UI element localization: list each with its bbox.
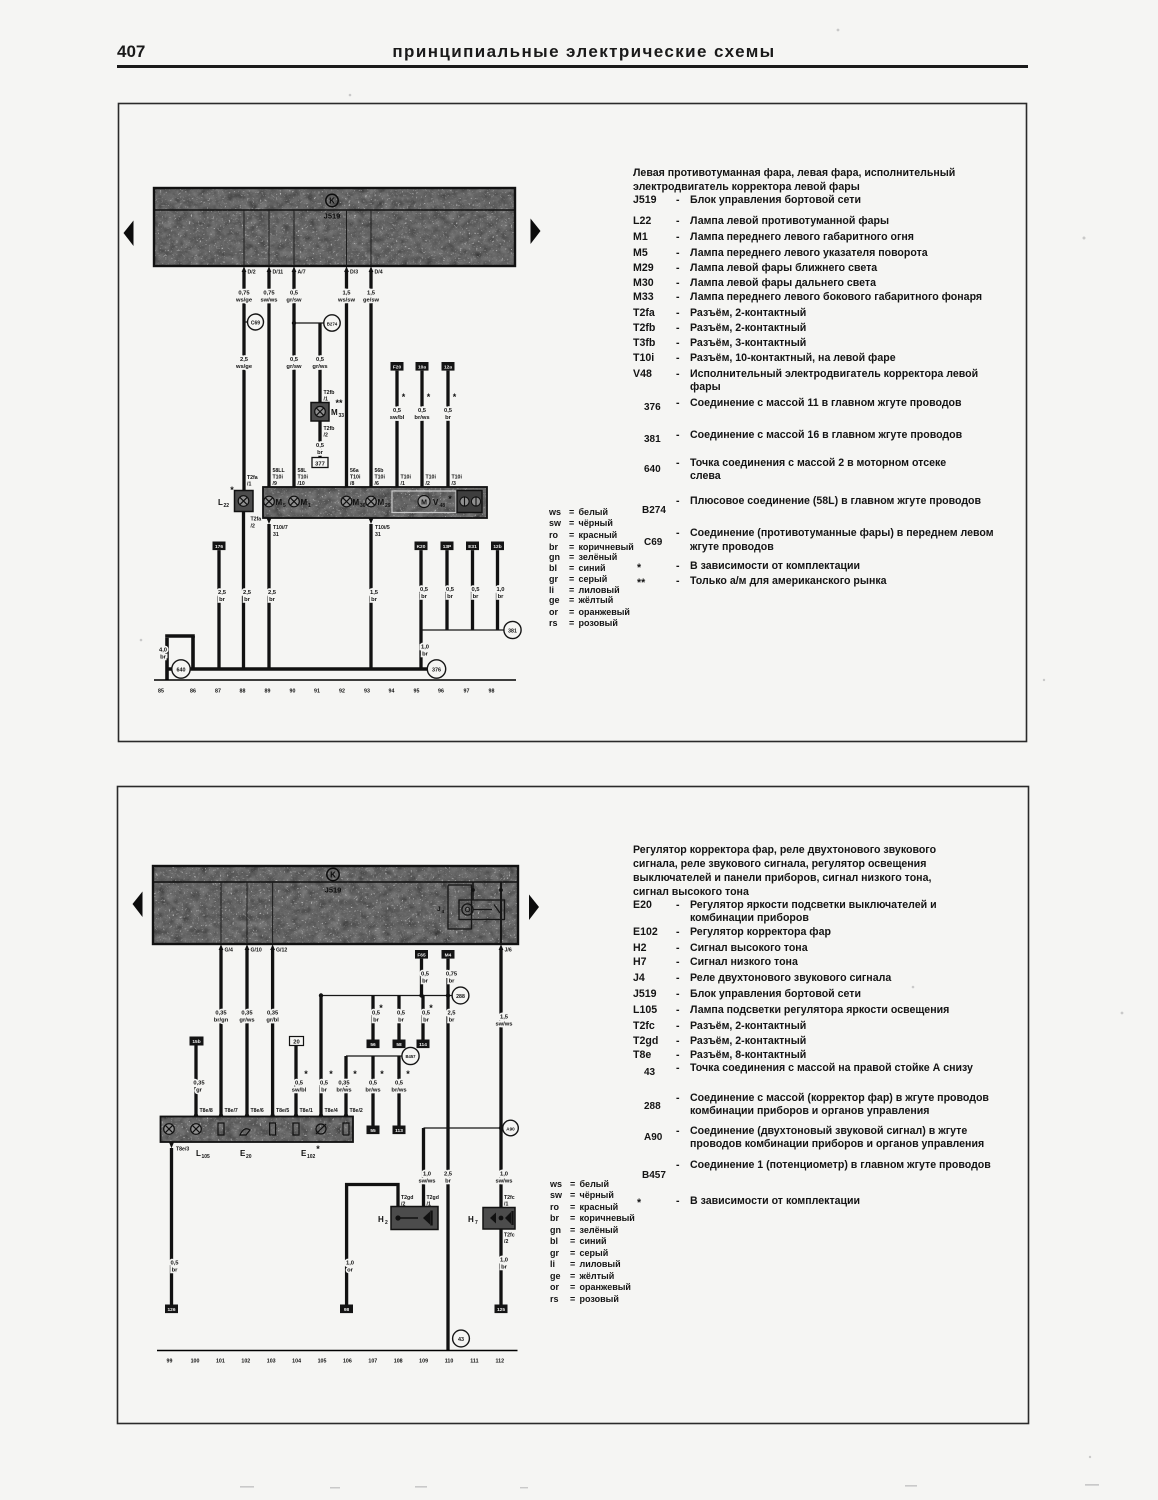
svg-text:T10i: T10i <box>452 475 463 481</box>
svg-text:/1: /1 <box>504 1202 508 1208</box>
svg-text:gr/bl: gr/bl <box>266 1018 279 1024</box>
svg-text:33: 33 <box>339 413 345 419</box>
svg-text:0,5: 0,5 <box>397 1011 406 1017</box>
svg-text:58LL: 58LL <box>273 468 286 474</box>
svg-text:C69: C69 <box>251 320 260 326</box>
svg-text:55: 55 <box>370 1128 376 1134</box>
svg-text:*: * <box>316 1144 320 1154</box>
svg-text:2,5: 2,5 <box>218 590 227 596</box>
svg-text:56: 56 <box>370 1042 376 1048</box>
svg-text:0,5: 0,5 <box>369 1081 378 1087</box>
svg-text:br: br <box>501 1265 508 1271</box>
svg-text:85: 85 <box>158 689 164 695</box>
svg-text:sw/ws: sw/ws <box>495 1179 512 1185</box>
svg-text:106: 106 <box>343 1359 352 1365</box>
svg-text:gr: gr <box>196 1088 203 1094</box>
svg-text:gr/ws: gr/ws <box>312 364 327 370</box>
svg-text:M: M <box>353 498 360 507</box>
svg-text:J: J <box>437 906 441 913</box>
svg-text:br: br <box>269 597 276 603</box>
svg-text:0,5: 0,5 <box>372 1011 381 1017</box>
svg-text:95: 95 <box>414 689 420 695</box>
svg-text:V: V <box>433 498 439 507</box>
svg-text:176: 176 <box>215 544 223 550</box>
svg-text:**: ** <box>335 398 343 408</box>
svg-text:377: 377 <box>315 462 325 468</box>
svg-text:M4: M4 <box>445 952 452 958</box>
svg-text:B457: B457 <box>405 1054 416 1059</box>
svg-text:M: M <box>378 498 385 507</box>
svg-text:56b: 56b <box>375 468 384 474</box>
svg-text:K: K <box>329 197 335 206</box>
svg-text:br/ws: br/ws <box>391 1088 406 1094</box>
svg-text:58: 58 <box>396 1042 402 1048</box>
svg-text:2,5: 2,5 <box>243 590 252 596</box>
svg-text:gr/ws: gr/ws <box>239 1018 254 1024</box>
svg-text:0,5: 0,5 <box>316 443 325 449</box>
svg-text:E31: E31 <box>468 544 477 550</box>
svg-text:103: 103 <box>267 1359 276 1365</box>
svg-text:br: br <box>373 1018 380 1024</box>
svg-text:381: 381 <box>508 628 517 634</box>
svg-text:107: 107 <box>368 1359 377 1365</box>
svg-text:102: 102 <box>307 1154 316 1160</box>
svg-text:0,5: 0,5 <box>170 1261 179 1267</box>
svg-text:T10i: T10i <box>426 475 437 481</box>
svg-text:*: * <box>329 1069 333 1079</box>
svg-text:*: * <box>353 1069 357 1079</box>
svg-text:J519: J519 <box>325 886 342 895</box>
svg-text:br: br <box>445 1179 452 1185</box>
svg-text:0,5: 0,5 <box>446 587 455 593</box>
svg-text:31: 31 <box>375 532 381 538</box>
svg-text:T10i: T10i <box>350 475 361 481</box>
svg-text:M: M <box>276 498 283 507</box>
svg-text:/1: /1 <box>324 397 328 403</box>
svg-text:*: * <box>453 392 457 402</box>
svg-text:99: 99 <box>167 1359 173 1365</box>
svg-text:ws/sw: ws/sw <box>337 298 356 304</box>
svg-text:ws/ge: ws/ge <box>235 298 253 304</box>
svg-text:br/ws: br/ws <box>336 1088 351 1094</box>
svg-text:*: * <box>380 1069 384 1079</box>
svg-text:1: 1 <box>308 503 311 509</box>
svg-text:1,0: 1,0 <box>500 1172 508 1178</box>
svg-text:98: 98 <box>344 1307 350 1313</box>
svg-text:20: 20 <box>293 1040 299 1046</box>
svg-text:ws/ge: ws/ge <box>235 364 253 370</box>
svg-text:48: 48 <box>440 503 446 509</box>
svg-text:T2gd: T2gd <box>401 1195 413 1201</box>
svg-text:br: br <box>422 652 429 658</box>
svg-text:T8e/6: T8e/6 <box>251 1108 264 1114</box>
svg-text:or: or <box>347 1268 354 1274</box>
svg-text:T10i: T10i <box>401 475 412 481</box>
svg-text:T2fa: T2fa <box>251 517 262 523</box>
svg-text:/2: /2 <box>324 433 328 439</box>
svg-text:7: 7 <box>475 1220 478 1226</box>
svg-text:0,75: 0,75 <box>238 291 250 297</box>
svg-text:94: 94 <box>389 689 395 695</box>
svg-text:0,5: 0,5 <box>393 408 402 414</box>
svg-text:0,5: 0,5 <box>320 1081 329 1087</box>
svg-text:K: K <box>330 871 336 880</box>
svg-text:gr/sw: gr/sw <box>286 364 302 370</box>
svg-text:12a: 12a <box>444 364 452 370</box>
svg-text:2,5: 2,5 <box>240 357 249 363</box>
svg-text:640: 640 <box>177 667 186 673</box>
svg-text:br/gn: br/gn <box>214 1018 229 1024</box>
svg-text:0,35: 0,35 <box>267 1011 279 1017</box>
svg-text:0,5: 0,5 <box>290 357 299 363</box>
svg-text:1,5: 1,5 <box>500 1015 509 1021</box>
svg-text:0,35: 0,35 <box>215 1011 227 1017</box>
svg-text:10a: 10a <box>418 364 426 370</box>
svg-text:1,0: 1,0 <box>346 1261 354 1267</box>
svg-text:T8e/3: T8e/3 <box>176 1147 189 1153</box>
svg-text:0,35: 0,35 <box>193 1081 205 1087</box>
svg-text:gr/sw: gr/sw <box>286 298 302 304</box>
svg-text:*: * <box>304 1069 308 1079</box>
svg-text:T8e/1: T8e/1 <box>300 1108 313 1114</box>
svg-text:86: 86 <box>190 689 196 695</box>
svg-text:br/ws: br/ws <box>414 415 429 421</box>
svg-text:5: 5 <box>283 503 286 509</box>
svg-text:112: 112 <box>496 1359 505 1365</box>
svg-text:105: 105 <box>318 1359 327 1365</box>
svg-text:2,5: 2,5 <box>268 590 277 596</box>
svg-text:88: 88 <box>240 689 246 695</box>
svg-text:92: 92 <box>339 689 345 695</box>
svg-text:110: 110 <box>445 1359 454 1365</box>
svg-text:K20: K20 <box>417 544 426 550</box>
svg-text:58L: 58L <box>298 468 308 474</box>
svg-text:93: 93 <box>364 689 370 695</box>
svg-text:31: 31 <box>273 532 279 538</box>
svg-text:*: * <box>230 485 234 495</box>
svg-text:br: br <box>321 1088 328 1094</box>
svg-text:0,5: 0,5 <box>471 587 480 593</box>
svg-text:A/7: A/7 <box>298 270 306 276</box>
svg-text:0,35: 0,35 <box>338 1081 350 1087</box>
svg-text:1,0: 1,0 <box>423 1172 431 1178</box>
svg-text:T2fc: T2fc <box>504 1233 515 1239</box>
svg-text:96: 96 <box>438 689 444 695</box>
svg-text:0,5: 0,5 <box>395 1081 404 1087</box>
svg-text:/1: /1 <box>247 482 251 488</box>
svg-text:89: 89 <box>265 689 271 695</box>
svg-text:T8e/7: T8e/7 <box>225 1108 238 1114</box>
svg-text:J519: J519 <box>324 212 341 221</box>
svg-text:2: 2 <box>385 1220 388 1226</box>
svg-text:M: M <box>331 408 338 417</box>
svg-text:0,5: 0,5 <box>295 1081 304 1087</box>
svg-text:*: * <box>406 1069 410 1079</box>
svg-text:104: 104 <box>292 1359 301 1365</box>
svg-text:91: 91 <box>314 689 320 695</box>
svg-text:br: br <box>317 450 324 456</box>
svg-text:G/12: G/12 <box>276 948 287 954</box>
svg-text:T8e/5: T8e/5 <box>276 1108 289 1114</box>
svg-text:101: 101 <box>216 1359 225 1365</box>
svg-text:br: br <box>371 597 378 603</box>
svg-text:G/4: G/4 <box>225 948 233 954</box>
svg-text:105: 105 <box>202 1154 211 1160</box>
svg-text:sw/ws: sw/ws <box>260 298 277 304</box>
svg-text:ge/sw: ge/sw <box>363 298 380 304</box>
svg-text:0,5: 0,5 <box>420 587 429 593</box>
svg-text:br: br <box>219 597 226 603</box>
svg-text:B274: B274 <box>327 321 338 326</box>
svg-text:56a: 56a <box>350 468 359 474</box>
svg-text:T2fb: T2fb <box>324 426 335 432</box>
svg-text:114: 114 <box>419 1042 427 1048</box>
svg-text:br/ws: br/ws <box>365 1088 380 1094</box>
svg-text:113: 113 <box>395 1128 403 1134</box>
svg-text:30: 30 <box>360 503 366 509</box>
svg-text:0,5: 0,5 <box>316 357 325 363</box>
svg-text:2,5: 2,5 <box>444 1172 453 1178</box>
svg-text:43: 43 <box>458 1337 464 1343</box>
svg-text:126: 126 <box>167 1307 175 1313</box>
svg-text:*: * <box>448 494 452 504</box>
svg-text:br: br <box>423 1018 430 1024</box>
svg-text:br: br <box>449 979 456 985</box>
svg-text:0,5: 0,5 <box>421 972 430 978</box>
svg-text:109: 109 <box>419 1359 428 1365</box>
svg-text:sw/ws: sw/ws <box>418 1179 435 1185</box>
svg-text:108: 108 <box>394 1359 403 1365</box>
svg-text:D/4: D/4 <box>375 270 383 276</box>
svg-text:98: 98 <box>489 689 495 695</box>
svg-text:0,5: 0,5 <box>444 408 453 414</box>
svg-text:T10i: T10i <box>273 475 284 481</box>
svg-text:111: 111 <box>470 1359 478 1365</box>
svg-text:22: 22 <box>224 503 230 509</box>
svg-text:sw/bl: sw/bl <box>292 1088 307 1094</box>
svg-text:T10i: T10i <box>298 475 309 481</box>
svg-text:*: * <box>427 392 431 402</box>
svg-text:T8e/8: T8e/8 <box>200 1108 213 1114</box>
svg-text:125: 125 <box>497 1307 505 1313</box>
svg-text:T10i: T10i <box>375 475 386 481</box>
svg-text:br: br <box>421 594 428 600</box>
svg-text:H: H <box>468 1215 474 1224</box>
svg-text:376: 376 <box>432 667 441 673</box>
svg-text:87: 87 <box>215 689 221 695</box>
svg-text:/2: /2 <box>251 524 255 530</box>
svg-text:br: br <box>244 597 251 603</box>
svg-text:sw/ws: sw/ws <box>495 1022 512 1028</box>
svg-text:br: br <box>445 415 452 421</box>
svg-text:J/6: J/6 <box>505 948 512 954</box>
svg-text:br: br <box>172 1268 179 1274</box>
svg-text:D/3: D/3 <box>350 270 358 276</box>
svg-text:0,75: 0,75 <box>263 291 275 297</box>
svg-text:F20: F20 <box>393 364 402 370</box>
svg-text:T2fc: T2fc <box>504 1195 515 1201</box>
svg-text:br: br <box>422 979 429 985</box>
svg-text:G/10: G/10 <box>251 948 262 954</box>
svg-text:A90: A90 <box>506 1126 515 1131</box>
svg-text:1,5: 1,5 <box>367 291 376 297</box>
svg-text:br: br <box>498 594 505 600</box>
svg-text:4: 4 <box>442 909 445 915</box>
svg-text:br: br <box>447 594 454 600</box>
svg-text:100: 100 <box>191 1359 200 1365</box>
svg-text:29: 29 <box>385 503 391 509</box>
svg-text:br: br <box>473 594 480 600</box>
svg-text:sw/bl: sw/bl <box>390 415 405 421</box>
svg-text:/2: /2 <box>504 1239 508 1245</box>
svg-text:1,0: 1,0 <box>500 1258 508 1264</box>
svg-text:T2fb: T2fb <box>324 390 335 396</box>
svg-text:M: M <box>421 499 427 506</box>
svg-text:20: 20 <box>246 1154 252 1160</box>
svg-text:2,5: 2,5 <box>447 1011 456 1017</box>
svg-text:L: L <box>218 498 223 507</box>
svg-text:102: 102 <box>241 1359 250 1365</box>
svg-text:288: 288 <box>456 994 465 1000</box>
svg-text:1,0: 1,0 <box>421 645 429 651</box>
svg-text:br: br <box>160 655 167 661</box>
svg-text:T10i/5: T10i/5 <box>375 525 390 531</box>
svg-text:0,5: 0,5 <box>422 1011 431 1017</box>
svg-text:L: L <box>196 1149 201 1158</box>
svg-text:*: * <box>402 392 406 402</box>
svg-text:M: M <box>301 498 308 507</box>
svg-text:0,35: 0,35 <box>241 1011 253 1017</box>
svg-text:13P: 13P <box>443 544 452 550</box>
svg-text:D/11: D/11 <box>273 270 284 276</box>
svg-text:1,0: 1,0 <box>496 587 504 593</box>
svg-text:T10i/7: T10i/7 <box>273 525 288 531</box>
svg-text:T8e/4: T8e/4 <box>325 1108 338 1114</box>
svg-text:0,5: 0,5 <box>418 408 427 414</box>
svg-text:15b: 15b <box>192 1039 200 1045</box>
svg-text:4,0: 4,0 <box>159 648 167 654</box>
svg-text:12b: 12b <box>493 544 501 550</box>
svg-text:97: 97 <box>464 689 470 695</box>
svg-text:T8e/2: T8e/2 <box>350 1108 363 1114</box>
svg-text:T2gd: T2gd <box>427 1195 439 1201</box>
svg-text:F65: F65 <box>417 952 426 958</box>
svg-text:H: H <box>378 1215 384 1224</box>
svg-text:D/2: D/2 <box>248 270 256 276</box>
svg-text:1,5: 1,5 <box>370 590 379 596</box>
svg-text:90: 90 <box>290 689 296 695</box>
svg-text:T2fa: T2fa <box>247 475 258 481</box>
svg-text:1,5: 1,5 <box>342 291 351 297</box>
svg-text:0,75: 0,75 <box>446 972 458 978</box>
svg-text:br: br <box>449 1018 456 1024</box>
svg-text:0,5: 0,5 <box>290 291 299 297</box>
svg-text:br: br <box>398 1018 405 1024</box>
